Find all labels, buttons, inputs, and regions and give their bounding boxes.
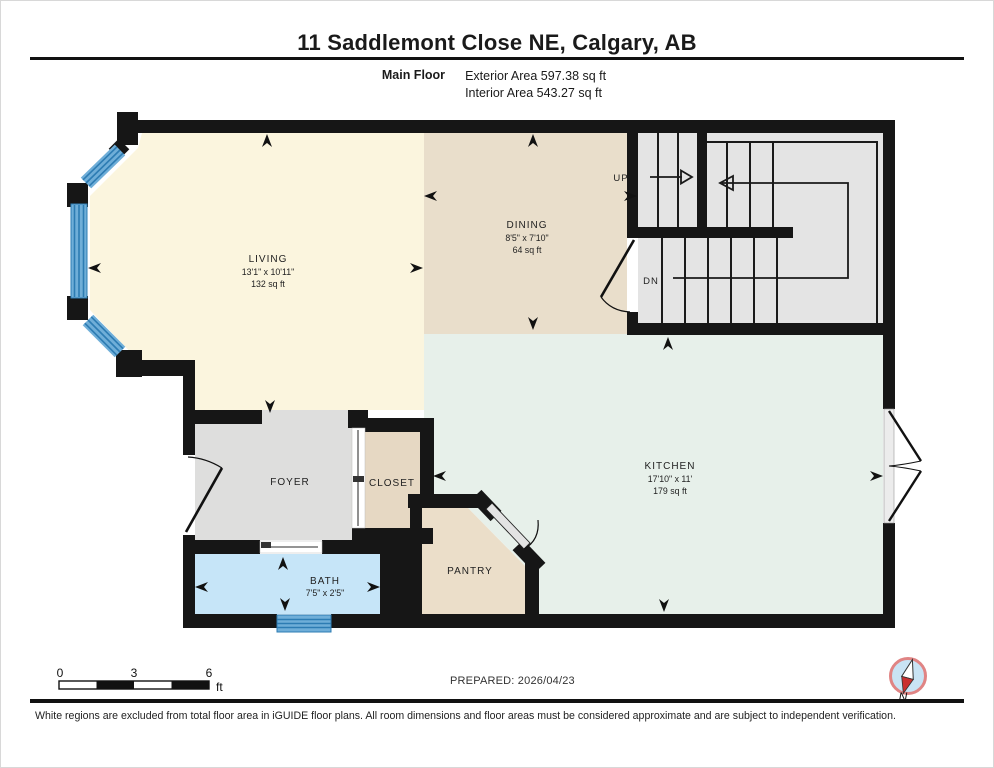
scale-unit: ft xyxy=(216,680,223,694)
room-label-kitchen: KITCHEN xyxy=(645,461,696,472)
stairs-down-shape xyxy=(638,238,883,323)
floorplan-page: 11 Saddlemont Close NE, Calgary, AB Main… xyxy=(0,0,994,768)
room-label-foyer: FOYER xyxy=(270,477,309,488)
scale-tick-6: 6 xyxy=(206,666,213,680)
floorplan-drawing: LIVING 13'1" x 10'11" 132 sq ft DINING 8… xyxy=(0,0,994,768)
room-area-dining: 64 sq ft xyxy=(513,245,542,255)
closet-sliding-door xyxy=(352,428,365,528)
scale-tick-3: 3 xyxy=(131,666,138,680)
disclaimer-text: White regions are excluded from total fl… xyxy=(35,710,965,722)
bath-shape xyxy=(195,554,380,614)
compass-icon: N xyxy=(891,658,926,704)
room-dims-bath: 7'5" x 2'5" xyxy=(306,588,344,598)
room-label-bath: BATH xyxy=(310,576,340,587)
room-label-living: LIVING xyxy=(249,254,288,265)
room-area-kitchen: 179 sq ft xyxy=(653,486,687,496)
bath-pocket-door xyxy=(260,541,322,553)
room-area-living: 132 sq ft xyxy=(251,279,285,289)
room-dims-kitchen: 17'10" x 11' xyxy=(648,474,693,484)
stairs-down-label: DN xyxy=(643,276,659,287)
room-dims-dining: 8'5" x 7'10" xyxy=(505,233,548,243)
bath-window xyxy=(277,615,331,632)
scale-bar: 0 3 6 ft xyxy=(57,666,224,694)
footer-divider xyxy=(30,699,964,703)
room-label-pantry: PANTRY xyxy=(447,566,493,577)
room-label-closet: CLOSET xyxy=(369,478,415,489)
prepared-date: PREPARED: 2026/04/23 xyxy=(450,675,575,687)
scale-tick-0: 0 xyxy=(57,666,64,680)
stairs-up-label: UP xyxy=(613,173,628,184)
kitchen-patio-doors xyxy=(884,409,921,523)
room-label-dining: DINING xyxy=(507,220,548,231)
room-dims-living: 13'1" x 10'11" xyxy=(242,267,295,277)
